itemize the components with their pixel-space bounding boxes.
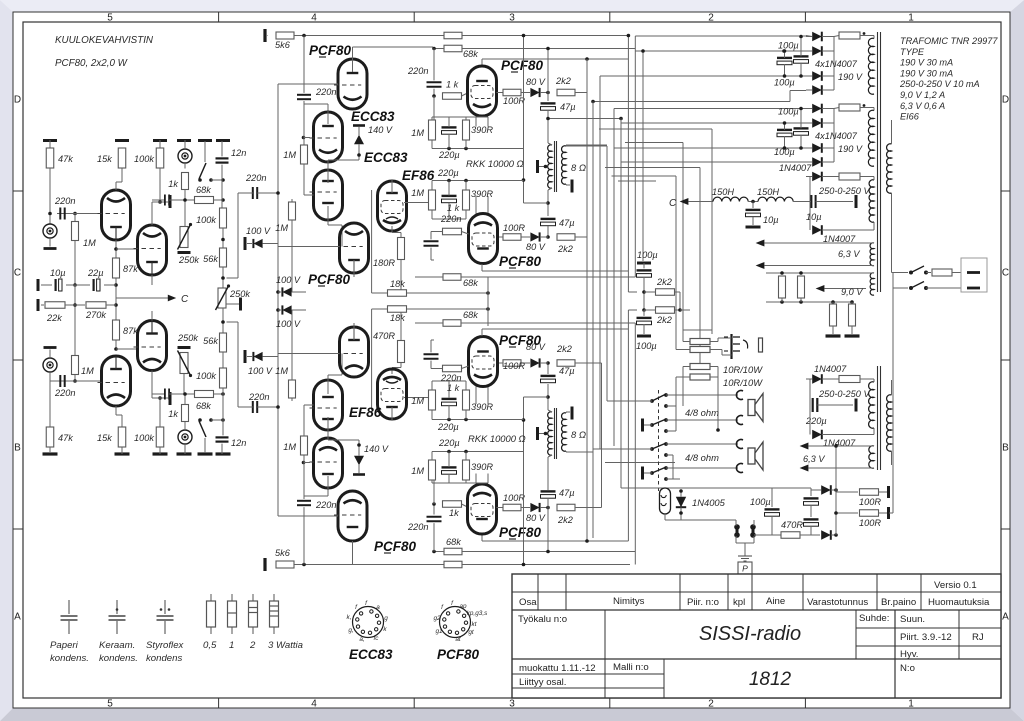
svg-text:220n: 220n [245,173,266,183]
svg-text:Työkalu n:o: Työkalu n:o [518,614,567,625]
svg-text:2k2: 2k2 [656,315,672,325]
svg-text:15k: 15k [97,154,112,164]
svg-text:47k: 47k [58,154,73,164]
svg-text:220n: 220n [407,66,428,76]
svg-text:Liittyy osal.: Liittyy osal. [519,677,566,688]
svg-text:8 Ω: 8 Ω [571,429,586,440]
svg-text:g2: g2 [433,615,441,622]
svg-text:PCF80: PCF80 [499,254,542,269]
svg-text:kondens: kondens [146,653,182,664]
svg-text:3: 3 [509,13,515,24]
svg-text:B: B [1002,443,1009,454]
svg-text:2k2: 2k2 [557,244,573,254]
svg-text:muokattu 1.11.-12: muokattu 1.11.-12 [519,663,596,674]
svg-text:C: C [181,294,189,305]
svg-text:C: C [669,198,677,209]
svg-text:220n: 220n [315,500,336,510]
svg-text:2: 2 [708,699,714,710]
svg-text:80 V: 80 V [526,77,546,87]
svg-text:6,3 V: 6,3 V [803,454,825,464]
svg-text:PCF80: PCF80 [437,647,480,662]
svg-text:100µ: 100µ [637,250,658,260]
svg-text:2: 2 [708,13,714,24]
svg-text:390R: 390R [471,462,493,472]
svg-text:10µ: 10µ [50,268,66,278]
svg-text:C: C [1002,268,1009,279]
svg-text:87k: 87k [123,326,138,336]
svg-text:1k: 1k [168,179,178,189]
svg-text:12n: 12n [231,148,246,158]
svg-text:470R: 470R [781,520,803,530]
svg-text:68k: 68k [463,278,478,288]
svg-text:10R/10W: 10R/10W [723,377,763,388]
svg-text:a,: a, [359,636,365,643]
svg-text:68k: 68k [196,185,211,195]
svg-text:100µ: 100µ [778,107,799,117]
svg-text:1M: 1M [81,366,94,376]
svg-text:Hyv.: Hyv. [900,649,918,660]
svg-text:5: 5 [107,13,113,24]
svg-text:KUULOKEVAHVISTIN: KUULOKEVAHVISTIN [55,35,154,46]
svg-text:D: D [14,95,21,106]
svg-text:18k: 18k [390,279,405,289]
svg-text:2k2: 2k2 [656,277,672,287]
svg-text:47µ: 47µ [560,102,576,112]
svg-text:1k: 1k [168,409,178,419]
svg-text:D: D [1002,95,1009,106]
svg-text:220n: 220n [407,522,428,532]
svg-text:10µ: 10µ [806,212,822,222]
svg-text:Suun.: Suun. [900,614,925,625]
svg-text:4: 4 [311,13,317,24]
svg-text:220n: 220n [54,196,75,206]
svg-text:ECC83: ECC83 [349,647,393,662]
svg-text:Piir. n:o: Piir. n:o [687,597,719,608]
svg-text:220n: 220n [54,388,75,398]
svg-text:1M: 1M [283,442,296,452]
svg-text:5: 5 [107,699,113,710]
svg-text:Varastotunnus: Varastotunnus [807,597,868,608]
svg-text:A: A [14,612,21,623]
svg-text:1M: 1M [411,466,424,476]
svg-text:TRAFOMIC TNR 29977: TRAFOMIC TNR 29977 [900,36,998,46]
svg-text:100k: 100k [196,215,216,225]
svg-text:100µ: 100µ [750,497,771,507]
svg-text:190 V 30 mA: 190 V 30 mA [900,68,953,78]
svg-text:47k: 47k [58,433,73,443]
svg-text:a: a [376,604,380,611]
svg-text:56k: 56k [203,336,218,346]
svg-text:10µ: 10µ [763,215,779,225]
svg-text:47µ: 47µ [559,488,575,498]
svg-text:190 V 30 mA: 190 V 30 mA [900,58,953,68]
svg-text:B: B [14,443,21,454]
svg-text:4: 4 [311,699,317,710]
svg-text:Aine: Aine [766,596,785,607]
svg-text:RKK 10000 Ω: RKK 10000 Ω [468,433,526,444]
svg-text:220µ: 220µ [437,422,459,432]
svg-text:N:o: N:o [900,663,915,674]
svg-text:220n: 220n [248,392,269,402]
svg-text:250k: 250k [177,333,198,343]
svg-text:8 Ω: 8 Ω [571,162,586,173]
svg-text:TYPE: TYPE [900,47,925,57]
svg-text:1M: 1M [275,366,288,376]
svg-text:2: 2 [249,640,256,651]
svg-text:100 V: 100 V [246,226,271,236]
svg-text:390R: 390R [471,189,493,199]
svg-text:100k: 100k [134,433,154,443]
svg-text:ECC83: ECC83 [351,109,395,124]
svg-text:100 V: 100 V [248,366,273,376]
svg-text:PCF80, 2x2,0 W: PCF80, 2x2,0 W [55,58,129,69]
svg-text:250-0-250 V: 250-0-250 V [818,389,870,399]
svg-text:68k: 68k [446,537,461,547]
svg-text:68k: 68k [463,49,478,59]
svg-text:250k: 250k [178,255,199,265]
svg-text:P: P [742,564,748,574]
svg-text:PCF80: PCF80 [499,525,542,540]
svg-text:100R: 100R [503,223,525,233]
svg-text:100k: 100k [196,371,216,381]
svg-text:68k: 68k [463,310,478,320]
svg-text:1 k: 1 k [446,80,459,90]
svg-text:6,3 V: 6,3 V [838,249,860,259]
svg-text:100µ: 100µ [636,341,657,351]
svg-text:1N4007: 1N4007 [814,364,847,374]
svg-text:1: 1 [908,13,914,24]
svg-text:kondens.: kondens. [50,653,89,664]
svg-text:at: at [455,636,461,643]
svg-text:A: A [1002,612,1009,623]
svg-text:15k: 15k [97,433,112,443]
svg-text:100R: 100R [503,493,525,503]
svg-text:100R: 100R [859,497,881,507]
svg-text:ECC83: ECC83 [364,150,408,165]
svg-text:68k: 68k [196,401,211,411]
svg-text:RJ: RJ [972,632,984,643]
svg-text:100 V: 100 V [276,275,301,285]
svg-text:Paperi: Paperi [50,640,79,651]
svg-text:140 V: 140 V [368,125,393,135]
svg-text:g,: g, [348,627,354,634]
svg-text:kondens.: kondens. [99,653,138,664]
svg-text:220µ: 220µ [438,150,460,160]
svg-text:100R: 100R [859,518,881,528]
svg-text:3 Wattia: 3 Wattia [268,640,303,651]
svg-text:0,5: 0,5 [203,640,217,651]
svg-text:220n: 220n [440,214,461,224]
svg-text:100µ: 100µ [778,41,799,51]
svg-text:PCF80: PCF80 [499,333,542,348]
svg-text:1k: 1k [449,508,459,518]
svg-text:SISSI-radio: SISSI-radio [699,623,801,645]
svg-text:kt: kt [472,621,477,628]
svg-text:190 V: 190 V [838,144,863,154]
svg-text:150H: 150H [712,187,734,197]
svg-text:1M: 1M [411,396,424,406]
svg-text:1 k: 1 k [447,203,460,213]
svg-text:Malli n:o: Malli n:o [613,662,649,673]
svg-text:47µ: 47µ [559,218,575,228]
svg-text:gt: gt [468,629,474,636]
svg-text:220µ: 220µ [437,168,459,178]
svg-text:3: 3 [509,699,515,710]
svg-text:22µ: 22µ [87,268,104,278]
svg-text:47µ: 47µ [559,366,575,376]
svg-text:g1: g1 [435,628,443,635]
svg-text:RKK 10000 Ω: RKK 10000 Ω [466,158,524,169]
svg-text:390R: 390R [471,402,493,412]
svg-text:100R: 100R [503,361,525,371]
svg-text:PCF80: PCF80 [309,43,352,58]
svg-text:1M: 1M [411,188,424,198]
svg-text:9,0 V 1,2 A: 9,0 V 1,2 A [900,90,945,100]
svg-text:g: g [384,615,388,622]
svg-text:Styroflex: Styroflex [146,640,185,651]
svg-text:1 k: 1 k [447,383,460,393]
svg-text:Huomautuksia: Huomautuksia [928,597,990,608]
svg-text:1812: 1812 [749,669,792,690]
svg-text:EF86: EF86 [402,168,435,183]
svg-text:1M: 1M [283,150,296,160]
svg-text:220n: 220n [440,373,461,383]
svg-text:18k: 18k [390,313,405,323]
svg-text:PCF80: PCF80 [374,539,417,554]
svg-text:PCF80: PCF80 [308,272,351,287]
svg-text:100 V: 100 V [276,319,301,329]
svg-text:100k: 100k [134,154,154,164]
svg-text:1: 1 [229,640,234,651]
svg-text:Nimitys: Nimitys [613,596,645,607]
svg-text:k,: k, [347,614,352,621]
svg-text:470R: 470R [373,331,395,341]
svg-text:Keraam.: Keraam. [99,640,135,651]
svg-text:1M: 1M [411,128,424,138]
svg-text:EF86: EF86 [349,405,382,420]
svg-text:4/8 ohm: 4/8 ohm [685,407,719,418]
svg-text:220µ: 220µ [438,438,460,448]
svg-text:C: C [14,268,21,279]
svg-text:PCF80: PCF80 [501,58,544,73]
svg-text:fc: fc [374,635,380,642]
svg-text:56k: 56k [203,254,218,264]
svg-text:5k6: 5k6 [275,548,291,558]
svg-text:Versio 0.1: Versio 0.1 [934,580,977,591]
svg-text:2k2: 2k2 [555,76,571,86]
svg-text:270k: 270k [85,310,106,320]
svg-text:kpl: kpl [733,597,745,608]
svg-text:ap: ap [459,603,467,610]
svg-text:250-0-250 V: 250-0-250 V [818,186,870,196]
svg-text:2k2: 2k2 [557,515,573,525]
svg-text:100µ: 100µ [774,147,795,157]
svg-text:4x1N4007: 4x1N4007 [815,59,858,69]
svg-text:180R: 180R [373,258,395,268]
svg-text:100µ: 100µ [774,78,795,88]
svg-text:Piirt. 3.9.-12: Piirt. 3.9.-12 [900,632,952,643]
svg-text:190 V: 190 V [838,72,863,82]
svg-text:1N4005: 1N4005 [692,497,726,508]
svg-text:1: 1 [908,699,914,710]
svg-text:5k6: 5k6 [275,40,291,50]
svg-text:100R: 100R [503,96,525,106]
svg-text:87k: 87k [123,264,138,274]
svg-text:1N4007: 1N4007 [779,163,812,173]
svg-text:1M: 1M [275,223,288,233]
svg-text:EI66: EI66 [900,112,920,122]
svg-text:4/8 ohm: 4/8 ohm [685,452,719,463]
svg-text:6,3 V 0,6 A: 6,3 V 0,6 A [900,101,945,111]
svg-text:10R/10W: 10R/10W [723,364,763,375]
svg-text:250-0-250 V 10 mA: 250-0-250 V 10 mA [899,79,980,89]
svg-text:4x1N4007: 4x1N4007 [815,131,858,141]
svg-text:390R: 390R [471,125,493,135]
svg-text:kp,g3,s: kp,g3,s [467,610,488,617]
svg-text:Osa: Osa [519,597,537,608]
svg-text:Br.paino: Br.paino [881,597,916,608]
svg-text:150H: 150H [757,187,779,197]
svg-text:2k2: 2k2 [556,344,572,354]
svg-text:220n: 220n [315,87,336,97]
svg-text:140 V: 140 V [364,444,389,454]
svg-text:80 V: 80 V [526,513,546,523]
svg-text:12n: 12n [231,438,246,448]
svg-text:80 V: 80 V [526,242,546,252]
svg-text:220µ: 220µ [805,416,827,426]
svg-text:Suhde:: Suhde: [859,613,889,624]
svg-text:22k: 22k [46,313,62,323]
svg-text:1M: 1M [83,238,96,248]
svg-text:9,0 V: 9,0 V [841,287,863,297]
